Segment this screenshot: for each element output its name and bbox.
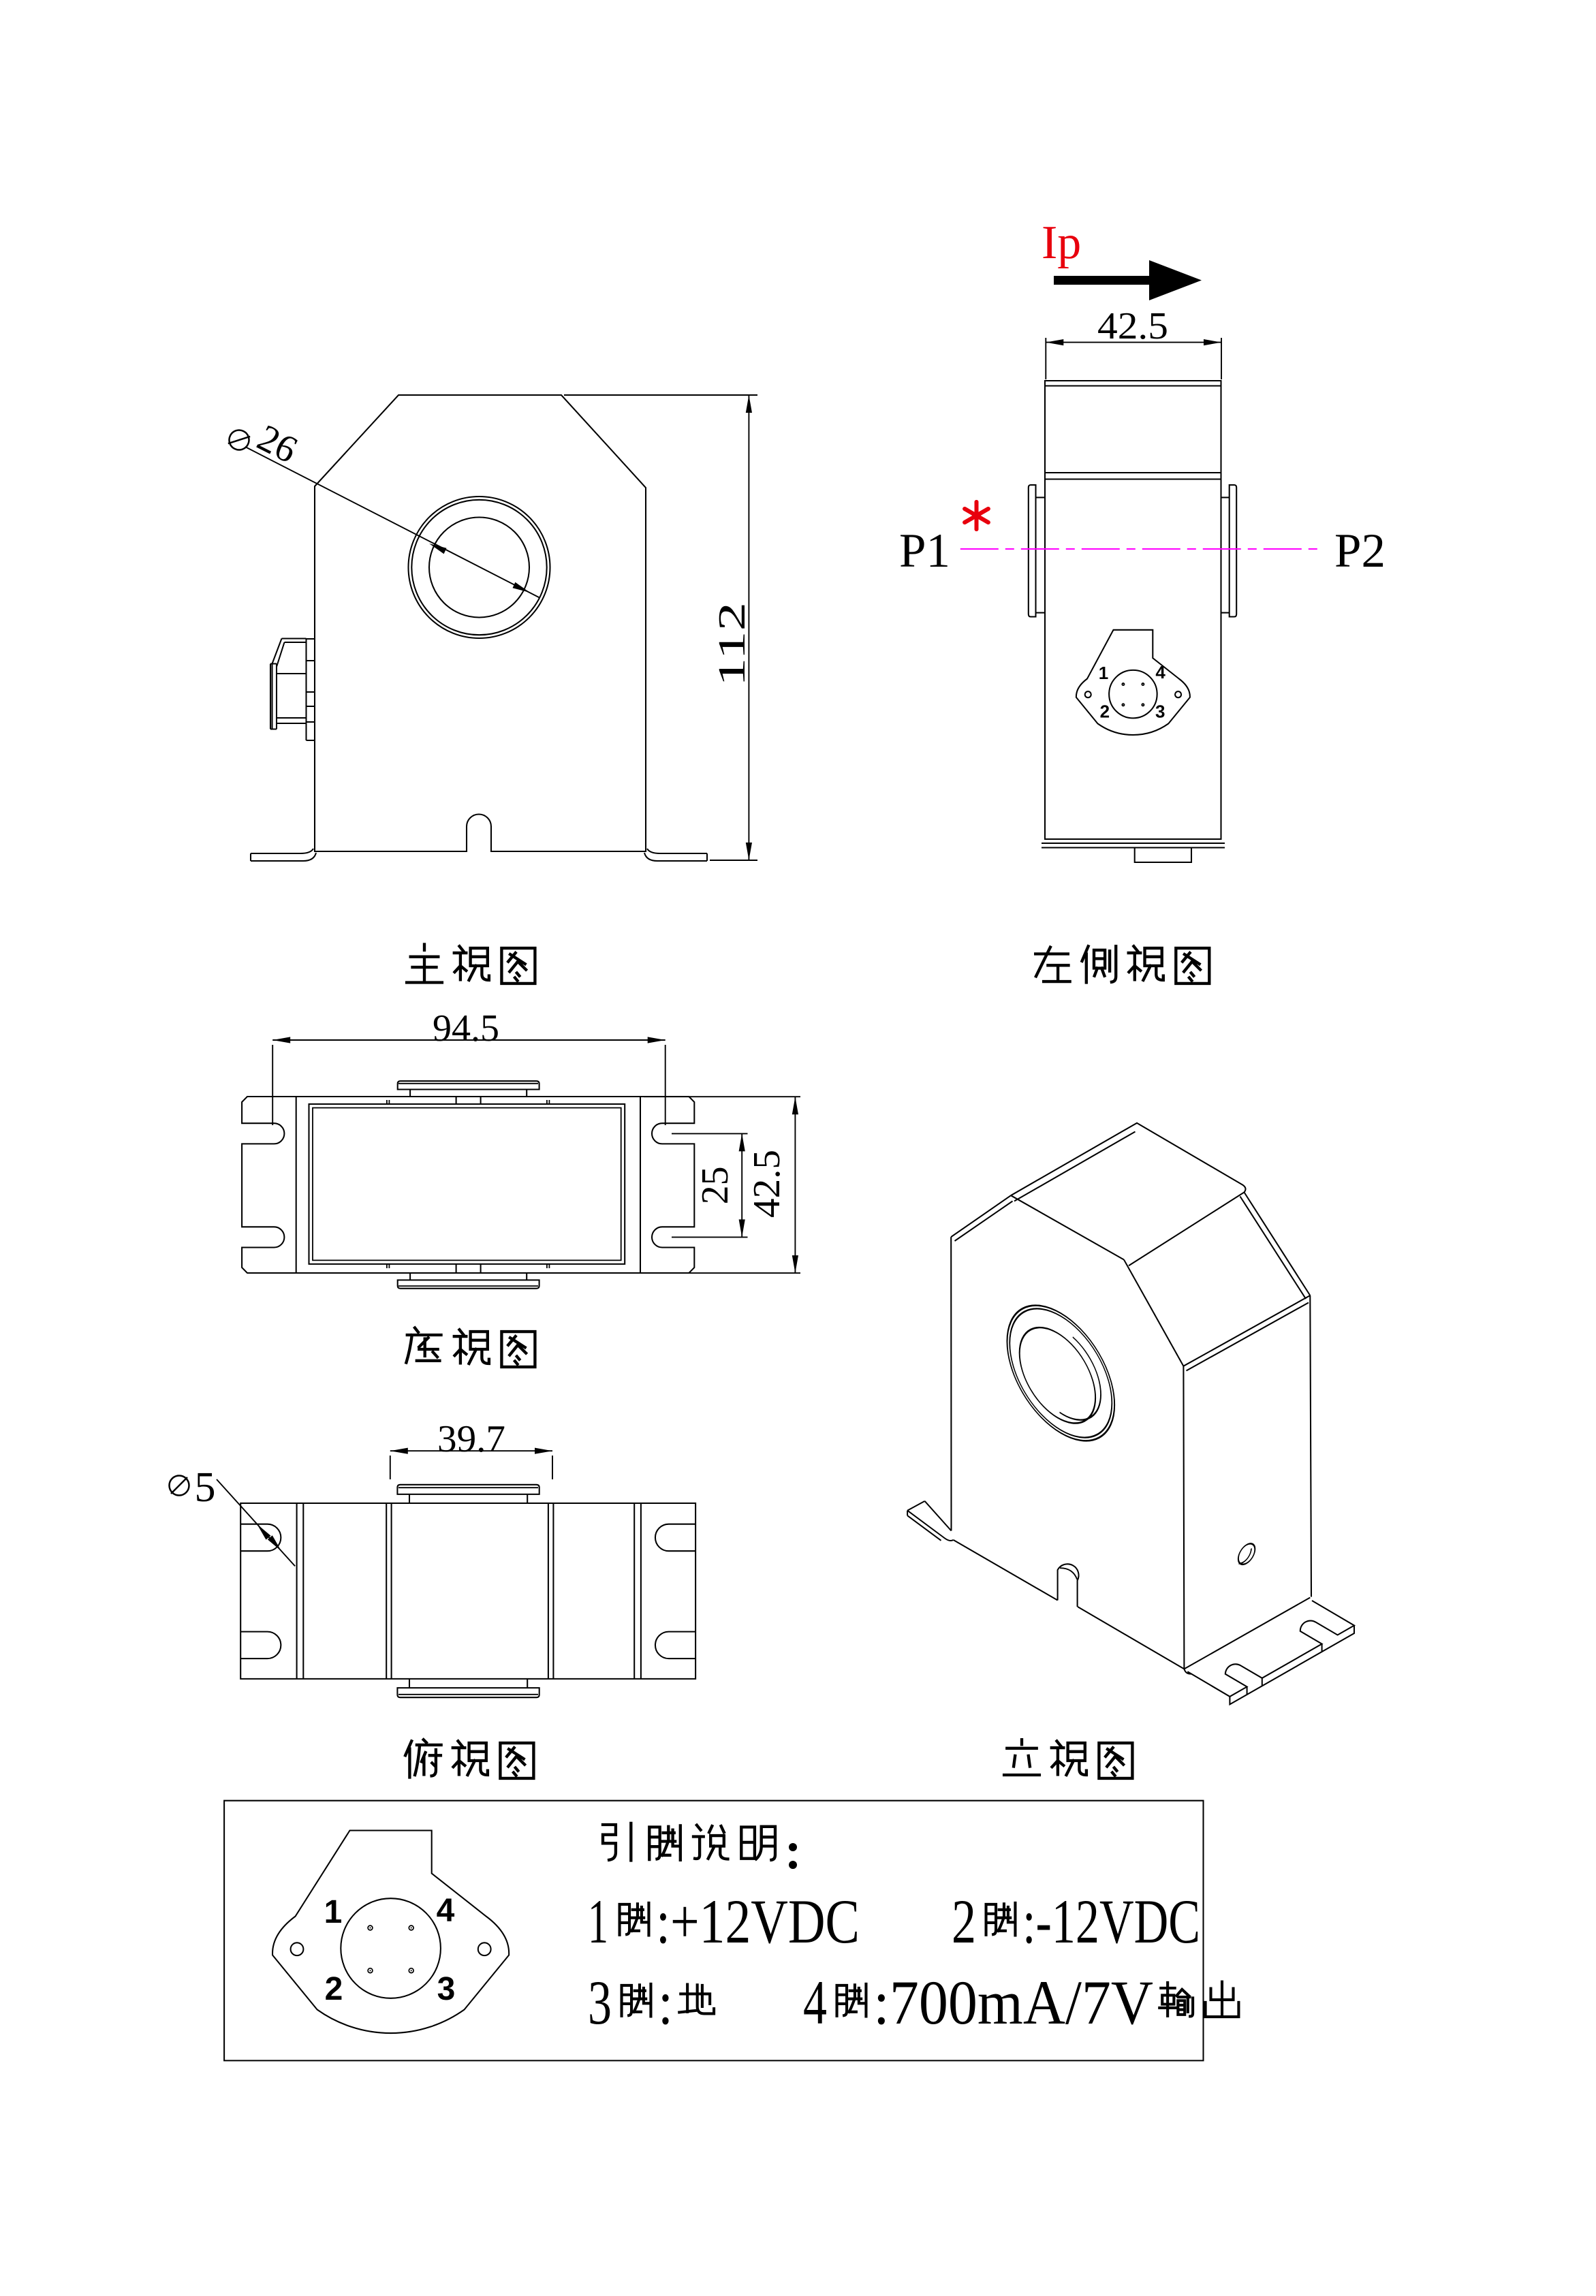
svg-text:P2: P2 <box>1334 524 1386 578</box>
svg-text::+12VDC: :+12VDC <box>656 1887 860 1956</box>
svg-text:4: 4 <box>437 1893 455 1929</box>
svg-text:1: 1 <box>324 1894 343 1930</box>
svg-text:39.7: 39.7 <box>437 1418 505 1460</box>
svg-text:94.5: 94.5 <box>433 1007 499 1050</box>
svg-text:1: 1 <box>588 1887 608 1956</box>
svg-text:2: 2 <box>1100 702 1110 722</box>
svg-text:Ip: Ip <box>1042 217 1081 269</box>
svg-text:42.5: 42.5 <box>746 1150 788 1218</box>
svg-text:1: 1 <box>1099 663 1108 683</box>
svg-text:4: 4 <box>1155 662 1165 682</box>
svg-text:112: 112 <box>711 602 753 687</box>
svg-text:P1: P1 <box>899 524 950 578</box>
svg-text::-12VDC: :-12VDC <box>1022 1887 1200 1956</box>
svg-text::700mA/7V: :700mA/7V <box>873 1968 1153 2037</box>
svg-text:25: 25 <box>694 1166 736 1204</box>
svg-text:3: 3 <box>1155 702 1165 722</box>
svg-text:3: 3 <box>588 1968 612 2037</box>
svg-text:4: 4 <box>803 1968 827 2037</box>
svg-text:42.5: 42.5 <box>1097 305 1168 347</box>
svg-text:3: 3 <box>437 1971 456 2007</box>
svg-text:2: 2 <box>952 1887 976 1956</box>
svg-text::: : <box>658 1968 673 2037</box>
svg-text:5: 5 <box>195 1464 216 1511</box>
svg-text:2: 2 <box>325 1971 343 2007</box>
